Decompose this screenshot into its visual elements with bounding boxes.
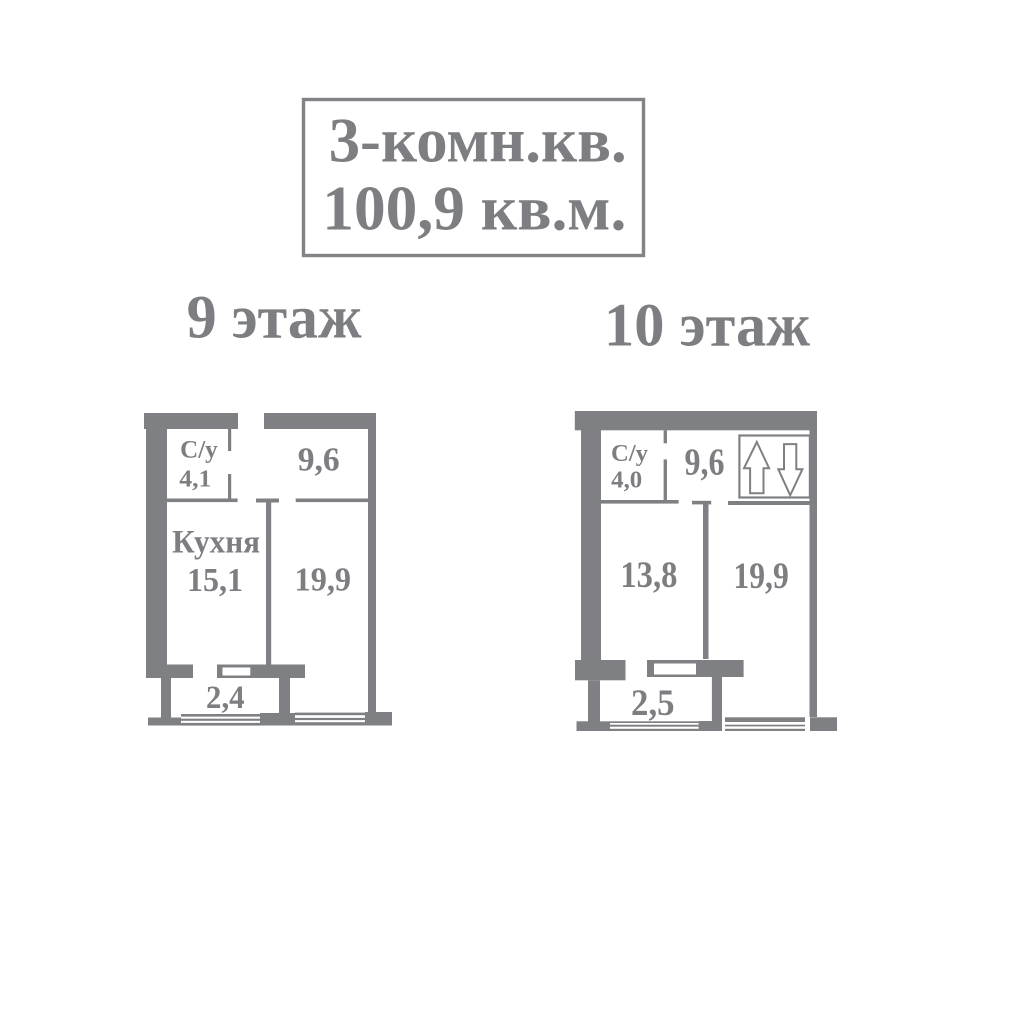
svg-text:2,5: 2,5 — [631, 683, 675, 724]
svg-text:3-комн.кв.: 3-комн.кв. — [329, 104, 627, 175]
svg-text:13,8: 13,8 — [620, 555, 677, 596]
svg-text:2,4: 2,4 — [206, 680, 245, 716]
svg-text:4,1: 4,1 — [179, 467, 211, 493]
svg-text:С/у: С/у — [180, 437, 218, 464]
svg-text:100,9 кв.м.: 100,9 кв.м. — [322, 173, 626, 244]
svg-text:С/у: С/у — [611, 441, 648, 467]
svg-text:19,9: 19,9 — [295, 561, 352, 598]
svg-text:19,9: 19,9 — [733, 556, 789, 597]
svg-text:Кухня: Кухня — [172, 525, 260, 561]
svg-text:15,1: 15,1 — [187, 562, 243, 599]
svg-text:10 этаж: 10 этаж — [604, 293, 811, 360]
svg-text:9,6: 9,6 — [685, 442, 725, 484]
svg-text:9 этаж: 9 этаж — [187, 284, 363, 351]
svg-text:9,6: 9,6 — [298, 442, 340, 479]
svg-text:4,0: 4,0 — [611, 467, 642, 494]
